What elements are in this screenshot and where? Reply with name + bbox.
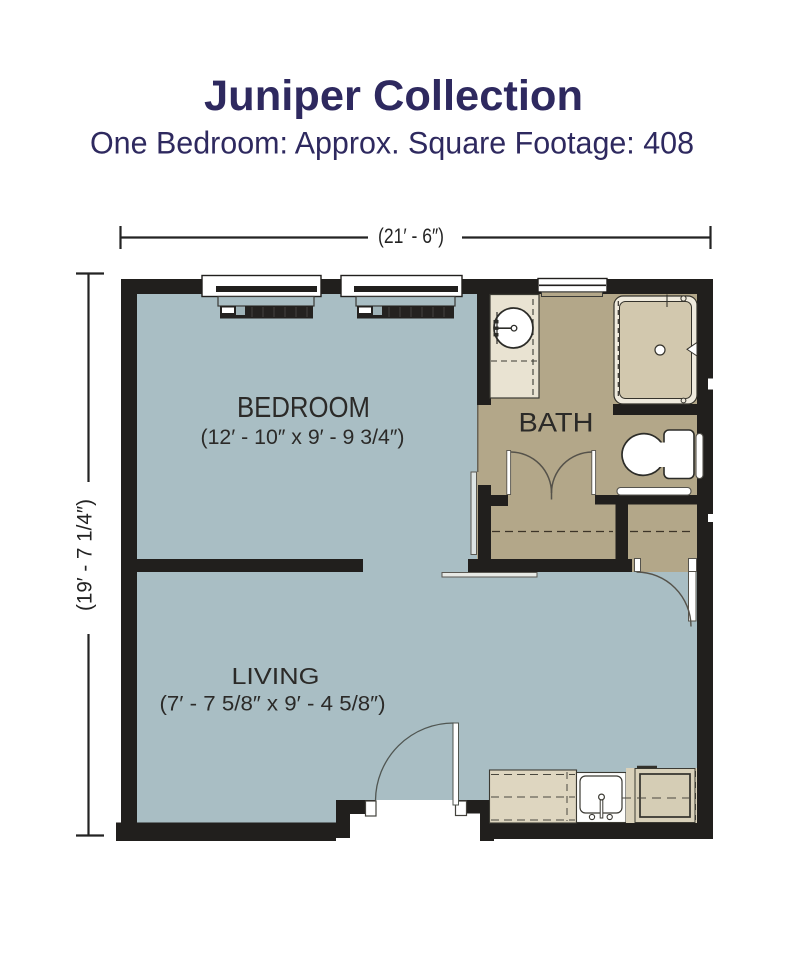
svg-text:Juniper Collection: Juniper Collection [204,72,583,120]
svg-text:BEDROOM: BEDROOM [237,392,370,424]
svg-text:BATH: BATH [519,408,594,438]
svg-text:(12′ - 10″ x 9′ - 9 3/4″): (12′ - 10″ x 9′ - 9 3/4″) [201,426,405,449]
svg-text:LIVING: LIVING [232,663,320,689]
svg-text:(21′ - 6″): (21′ - 6″) [378,225,444,248]
svg-text:(19′ - 7 1/4″): (19′ - 7 1/4″) [74,499,97,611]
svg-text:One Bedroom: Approx. Square Fo: One Bedroom: Approx. Square Footage: 408 [90,125,694,161]
svg-text:(7′ - 7 5/8″ x 9′ - 4 5/8″): (7′ - 7 5/8″ x 9′ - 4 5/8″) [160,693,386,716]
